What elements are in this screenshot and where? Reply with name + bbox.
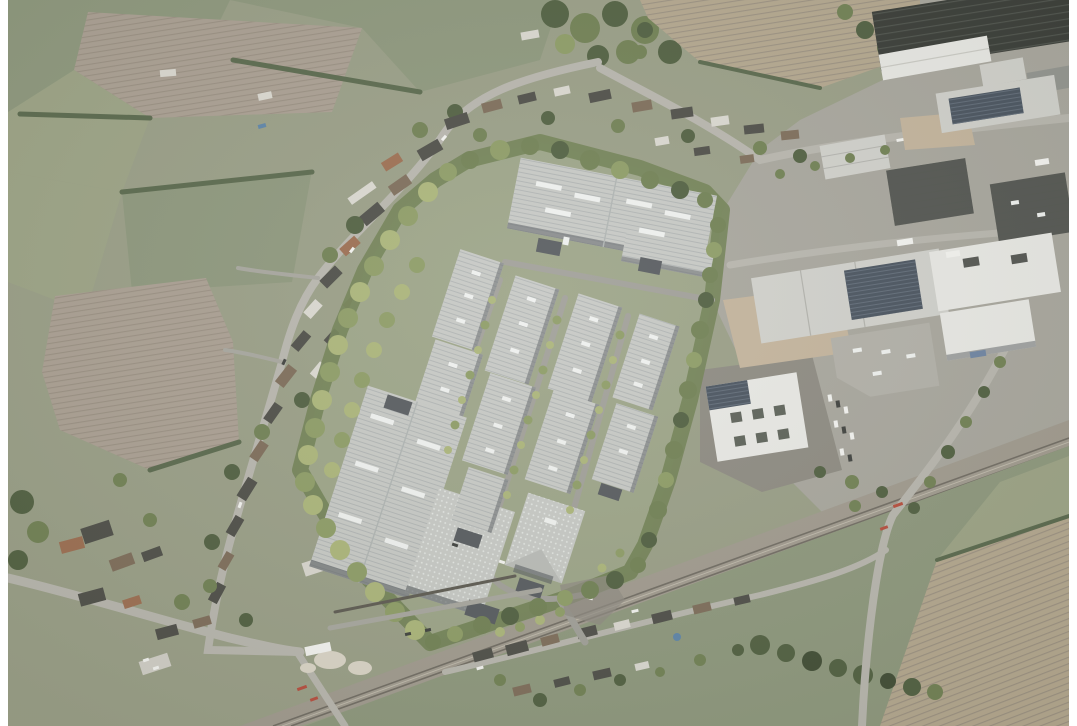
aerial-photo [0, 0, 1077, 726]
photo-haze [8, 0, 1069, 726]
page [0, 0, 1077, 726]
